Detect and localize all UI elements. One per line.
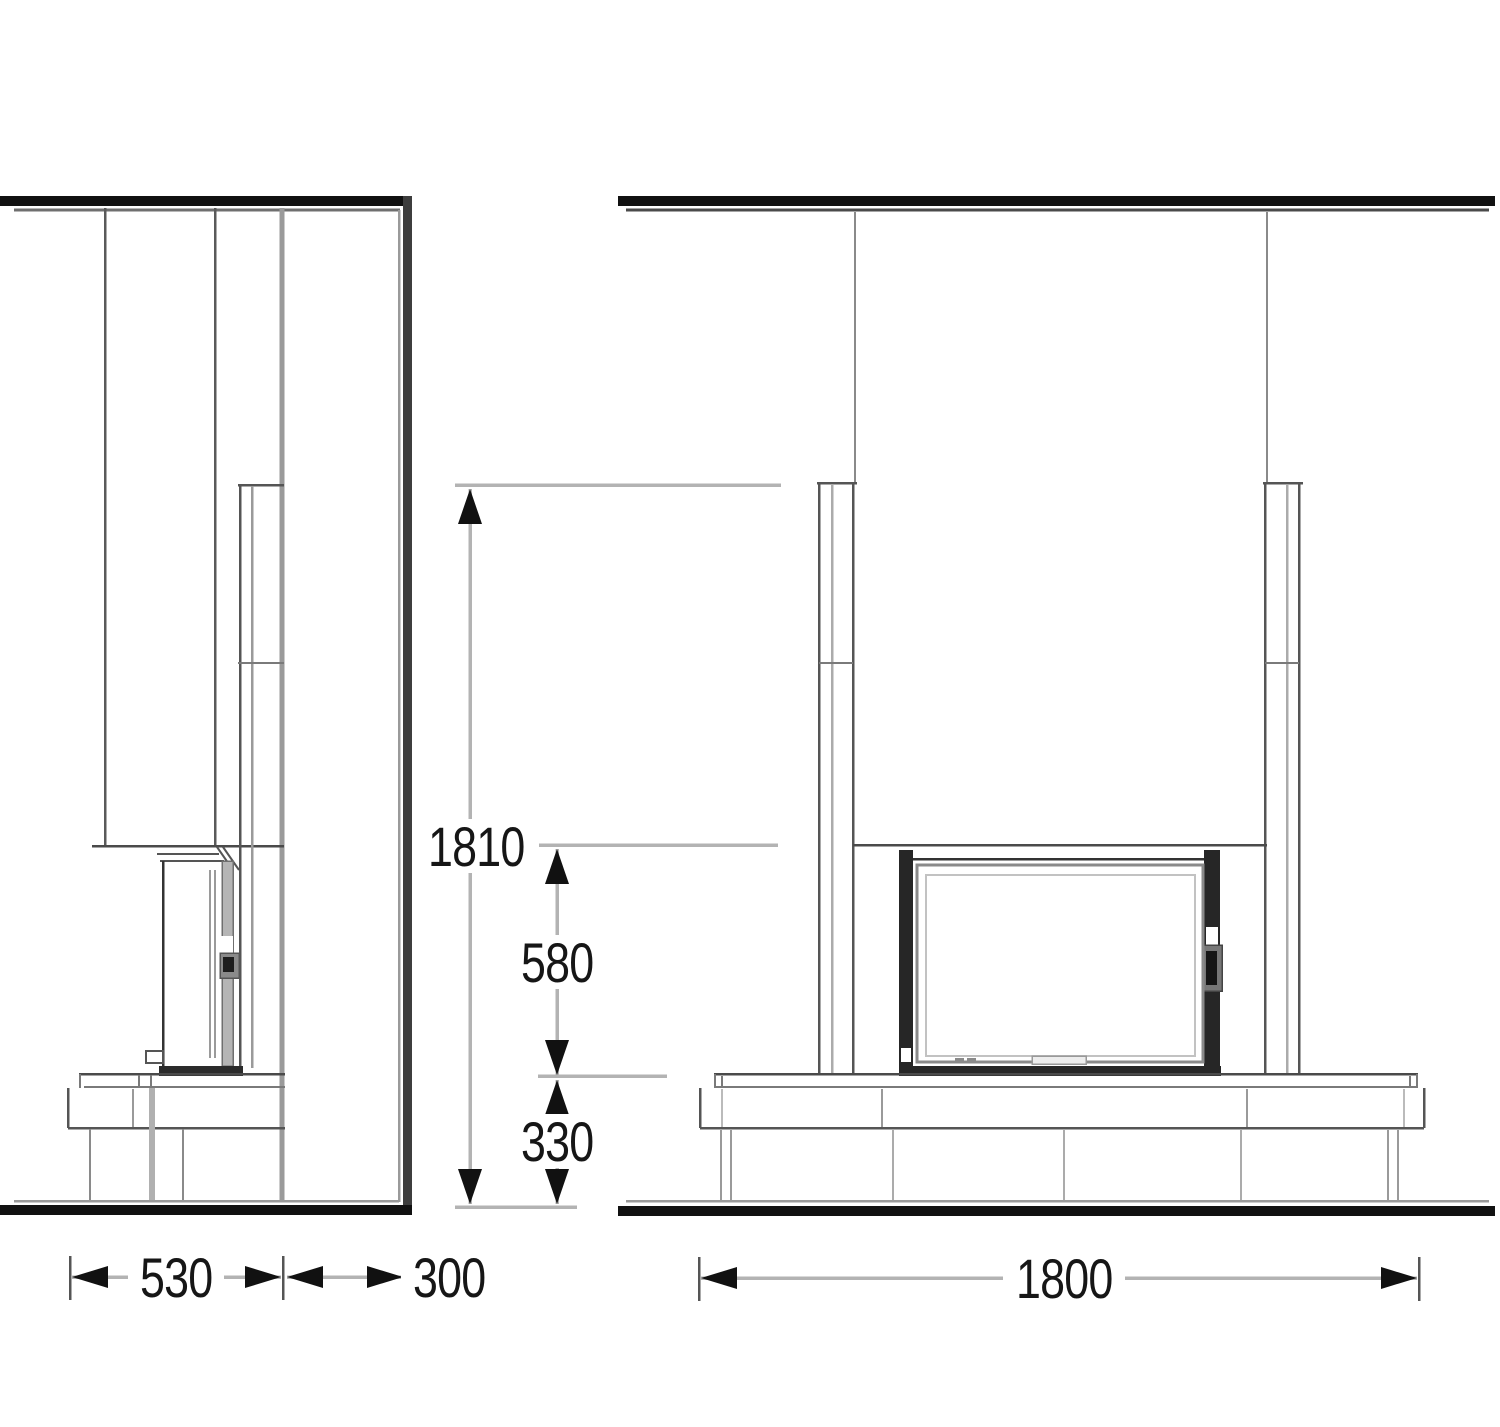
dimension-label-depth-rear: 300 bbox=[401, 1250, 497, 1304]
side-wall-line bbox=[403, 196, 412, 1215]
stove-top-lines bbox=[157, 854, 224, 861]
arrow-right-width-total bbox=[1381, 1267, 1417, 1289]
firebox-left-bar-notch bbox=[901, 1048, 911, 1062]
front-floor-line bbox=[618, 1206, 1495, 1216]
dimension-label-height-opening: 580 bbox=[509, 935, 605, 989]
firebox-vent-slot bbox=[1032, 1056, 1086, 1064]
plinth-joints-front bbox=[893, 1130, 1241, 1200]
side-ceiling-line bbox=[0, 196, 412, 206]
dimension-value-height-total: 1810 bbox=[428, 814, 524, 879]
dimension-value-height-base: 330 bbox=[521, 1109, 593, 1174]
dimension-value-width-total: 1800 bbox=[1016, 1246, 1112, 1311]
arrow-down-height-base bbox=[545, 1169, 569, 1204]
bench-slab-joints-front bbox=[882, 1089, 1247, 1127]
arrow-left-width-total bbox=[701, 1267, 737, 1289]
bench-slab-end-lines bbox=[722, 1089, 1404, 1127]
side-view bbox=[0, 196, 412, 1215]
bench-lip-edges-side bbox=[80, 1074, 151, 1088]
dimension-label-depth-front: 530 bbox=[128, 1250, 224, 1304]
firebox-handle-notch bbox=[1206, 927, 1218, 945]
firebox-outer-frame bbox=[917, 865, 1203, 1062]
firebox-handle-core bbox=[1206, 951, 1217, 985]
firebox-left-bar bbox=[899, 850, 913, 1072]
door-handle-notch bbox=[221, 936, 233, 953]
bench-slab-front bbox=[700, 1088, 1424, 1128]
front-ceiling-line bbox=[618, 196, 1495, 206]
dimension-label-height-total: 1810 bbox=[415, 819, 537, 873]
stove-foot bbox=[146, 1051, 163, 1063]
arrow-left-depth-front bbox=[72, 1266, 108, 1288]
bench-slab-side bbox=[68, 1088, 285, 1128]
door-handle-core bbox=[223, 957, 234, 972]
dimension-value-depth-front: 530 bbox=[140, 1245, 212, 1310]
fireplace-dimension-diagram: 1810 580 330 530 300 1800 bbox=[0, 0, 1500, 1427]
door-glass-lines bbox=[210, 870, 215, 1058]
dimension-label-width-total: 1800 bbox=[1003, 1251, 1125, 1305]
front-view bbox=[618, 196, 1495, 1216]
side-floor-line bbox=[0, 1205, 412, 1215]
arrow-up-height-total bbox=[458, 489, 482, 524]
dimension-value-height-opening: 580 bbox=[521, 930, 593, 995]
dimension-label-height-base: 330 bbox=[509, 1114, 605, 1168]
plinth-edges-front bbox=[721, 1130, 1398, 1200]
arrow-up-height-opening bbox=[545, 849, 569, 884]
right-column-edges bbox=[1265, 484, 1299, 1073]
arrow-down-height-total bbox=[458, 1169, 482, 1204]
firebox-glass-frame bbox=[926, 875, 1195, 1056]
arrow-left-depth-rear bbox=[287, 1266, 323, 1288]
flue-lines bbox=[855, 212, 1267, 482]
arrow-right-depth-front bbox=[245, 1266, 281, 1288]
dimension-value-depth-rear: 300 bbox=[413, 1245, 485, 1310]
left-column-edges bbox=[819, 484, 853, 1073]
arrow-down-height-opening bbox=[545, 1040, 569, 1075]
arrow-right-depth-rear bbox=[367, 1266, 403, 1288]
